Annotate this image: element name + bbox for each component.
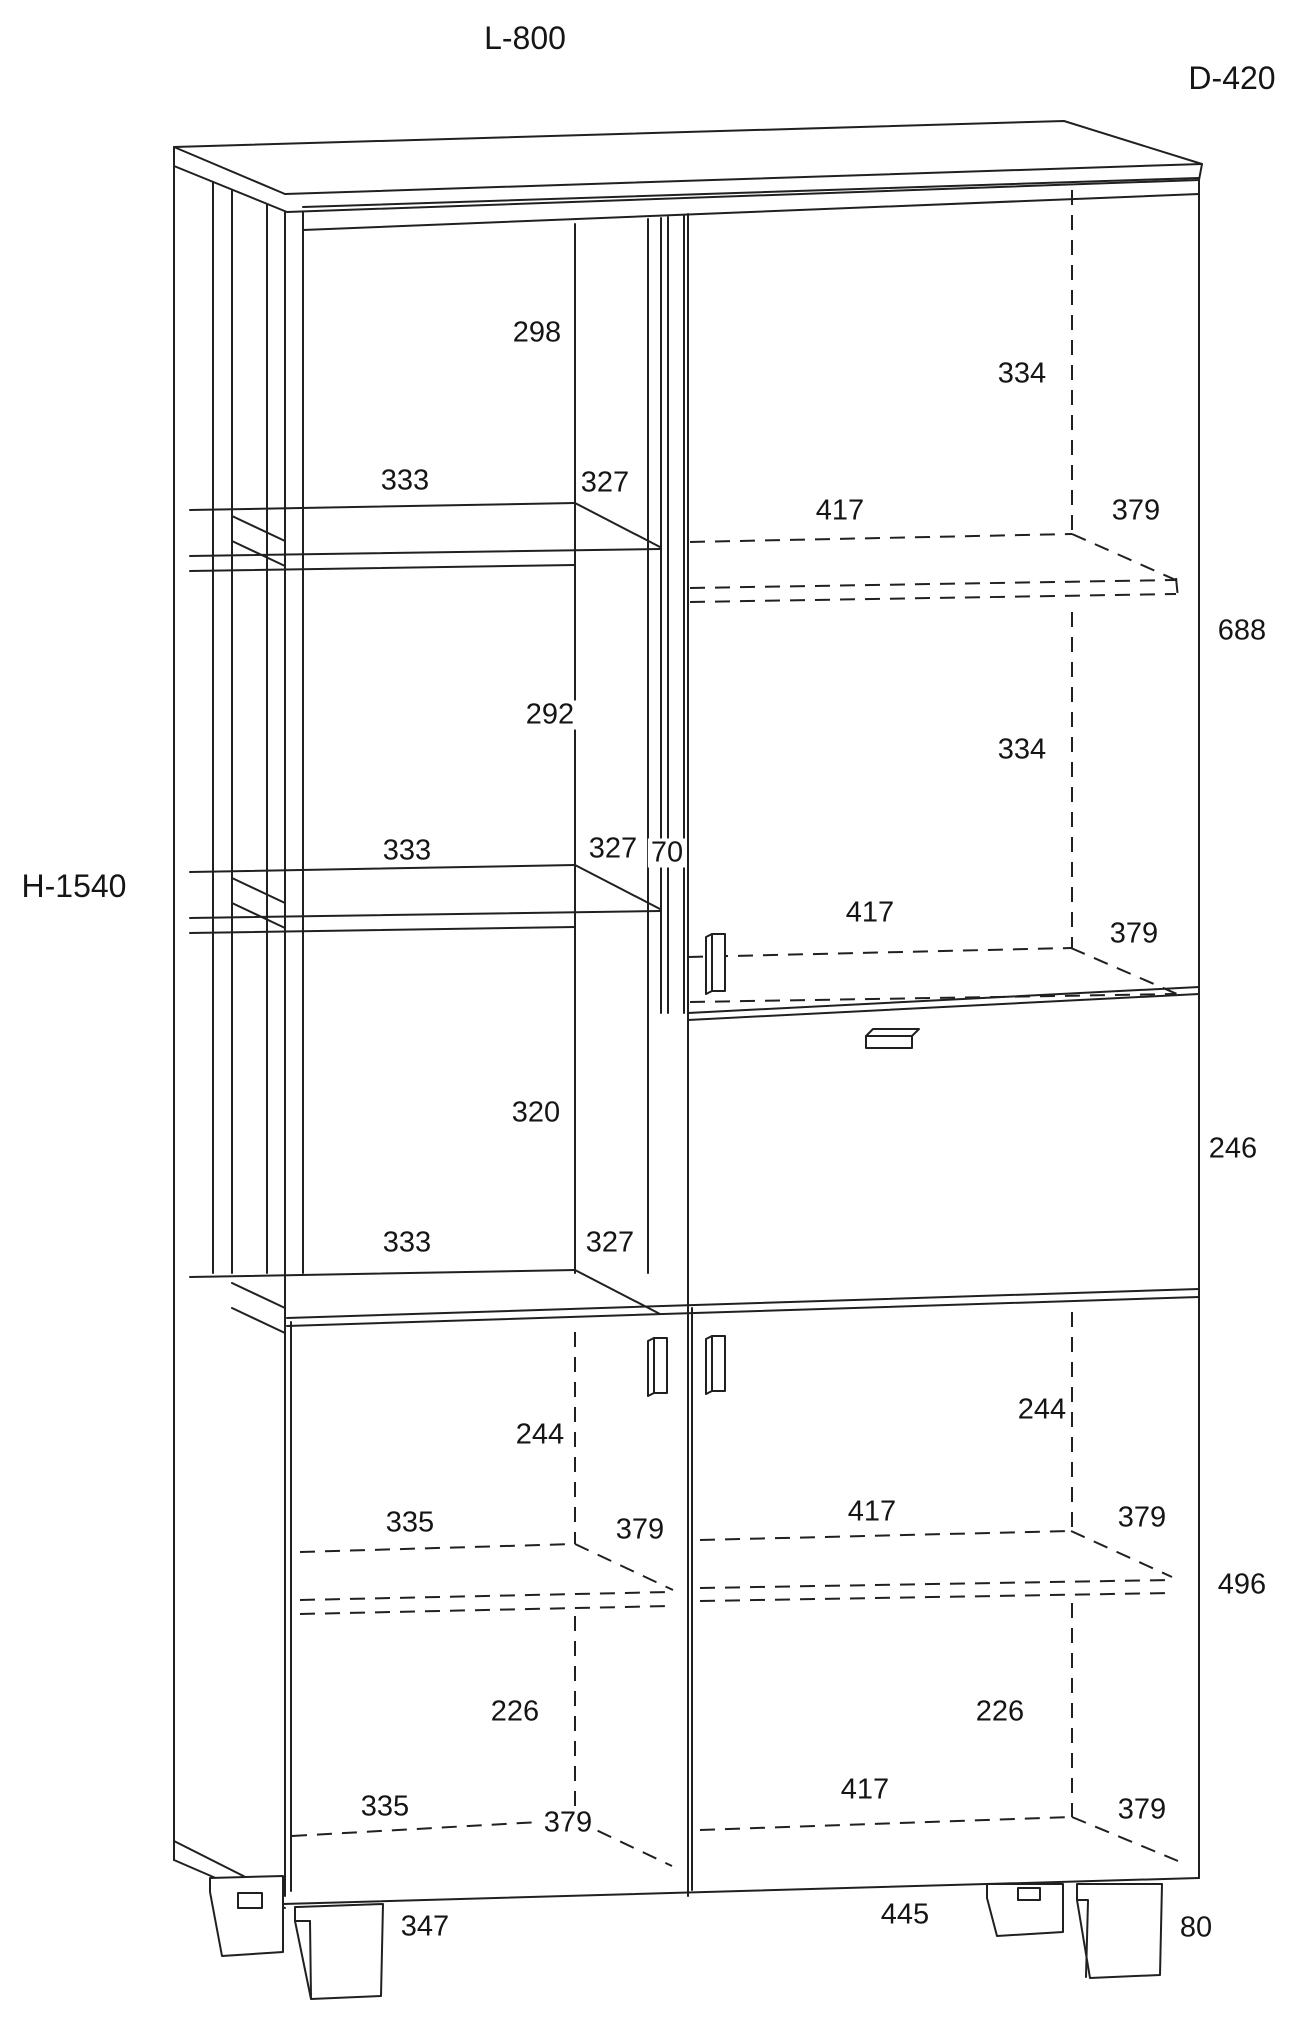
dim-divider-width: 70 [648, 839, 686, 868]
dim-lower-right-bottom-clearance: 226 [973, 1698, 1027, 1727]
dim-lower-right-bottom-width: 417 [838, 1776, 892, 1805]
dim-upper-hidden-shelf1-width: 417 [813, 497, 867, 526]
dim-upper-hidden-shelf2-depth: 379 [1107, 920, 1161, 949]
drawer [287, 987, 1199, 1326]
dim-right-door-width: 445 [878, 1901, 932, 1930]
dim-lower-left-bottom-depth: 379 [541, 1809, 595, 1838]
overall-depth-label: D-420 [1185, 62, 1278, 94]
dim-lower-left-shelf-width: 335 [383, 1509, 437, 1538]
dim-upper-door-shelf-gap: 334 [995, 736, 1049, 765]
dim-shelf1-depth: 327 [578, 469, 632, 498]
lower-right-door-handle [706, 1336, 725, 1394]
dim-lower-compartment-height: 320 [509, 1099, 563, 1128]
furniture-technical-drawing: L-800 D-420 H-1540 298 334 333 327 417 3… [0, 0, 1301, 2028]
dim-lower-right-top-clearance: 244 [1015, 1396, 1069, 1425]
dim-leg-height: 80 [1177, 1914, 1215, 1943]
dim-upper-compartment-height: 298 [510, 319, 564, 348]
dim-middle-compartment-height: 292 [523, 701, 577, 730]
dim-lower-left-top-clearance: 244 [513, 1421, 567, 1450]
dim-shelf2-width: 333 [380, 837, 434, 866]
dim-lower-left-bottom-width: 335 [358, 1793, 412, 1822]
dim-upper-door-top-gap: 334 [995, 360, 1049, 389]
drawer-handle [866, 1029, 919, 1048]
lower-right-hidden-shelf [700, 1312, 1178, 1861]
dim-lower-right-shelf-width: 417 [845, 1498, 899, 1527]
open-shelves [190, 503, 660, 1314]
dim-shelf3-width: 333 [380, 1229, 434, 1258]
upper-door-handle [706, 934, 725, 994]
cabinet-line-drawing [0, 0, 1301, 2028]
upper-hidden-shelves [688, 190, 1178, 1002]
lower-left-door-handle [648, 1338, 667, 1396]
dim-upper-door-interior-height: 688 [1215, 617, 1269, 646]
dim-lower-right-bottom-depth: 379 [1115, 1796, 1169, 1825]
dim-shelf2-depth: 327 [586, 835, 640, 864]
dim-lower-right-shelf-depth: 379 [1115, 1504, 1169, 1533]
dim-lower-left-bottom-clearance: 226 [488, 1698, 542, 1727]
dim-upper-hidden-shelf2-width: 417 [843, 899, 897, 928]
dim-left-door-width: 347 [398, 1913, 452, 1942]
overall-width-label: L-800 [481, 22, 569, 54]
dim-shelf1-width: 333 [378, 467, 432, 496]
overall-height-label: H-1540 [19, 870, 130, 902]
legs [210, 1876, 1162, 1999]
dim-shelf3-depth: 327 [583, 1229, 637, 1258]
dim-upper-hidden-shelf1-depth: 379 [1109, 497, 1163, 526]
lower-left-hidden-shelf [292, 1332, 673, 1866]
carcass-edges [174, 180, 1199, 1908]
dim-lower-interior-height: 496 [1215, 1571, 1269, 1600]
dim-lower-left-shelf-depth: 379 [613, 1516, 667, 1545]
dim-drawer-height: 246 [1206, 1135, 1260, 1164]
left-side-frame [174, 166, 303, 1896]
